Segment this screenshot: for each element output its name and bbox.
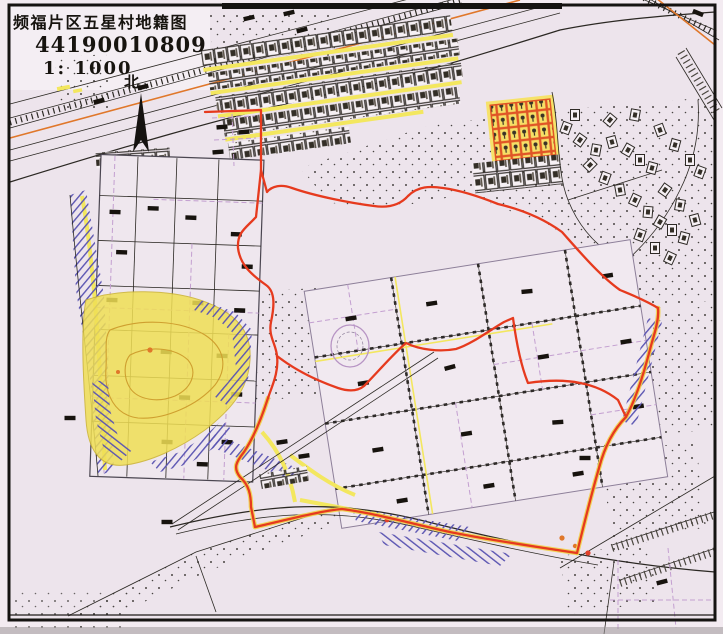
central-parcel-grid [304, 240, 667, 529]
map-canvas [0, 0, 723, 634]
sheet-number: 44190010809 [35, 32, 207, 57]
map-title: 频福片区五星村地籍图 [13, 9, 188, 33]
north-label: 北 [124, 71, 139, 92]
scale-label: 1: 1000 [43, 58, 133, 79]
cadastral-map-scan: 频福片区五星村地籍图 44190010809 1: 1000 北 [0, 0, 723, 634]
